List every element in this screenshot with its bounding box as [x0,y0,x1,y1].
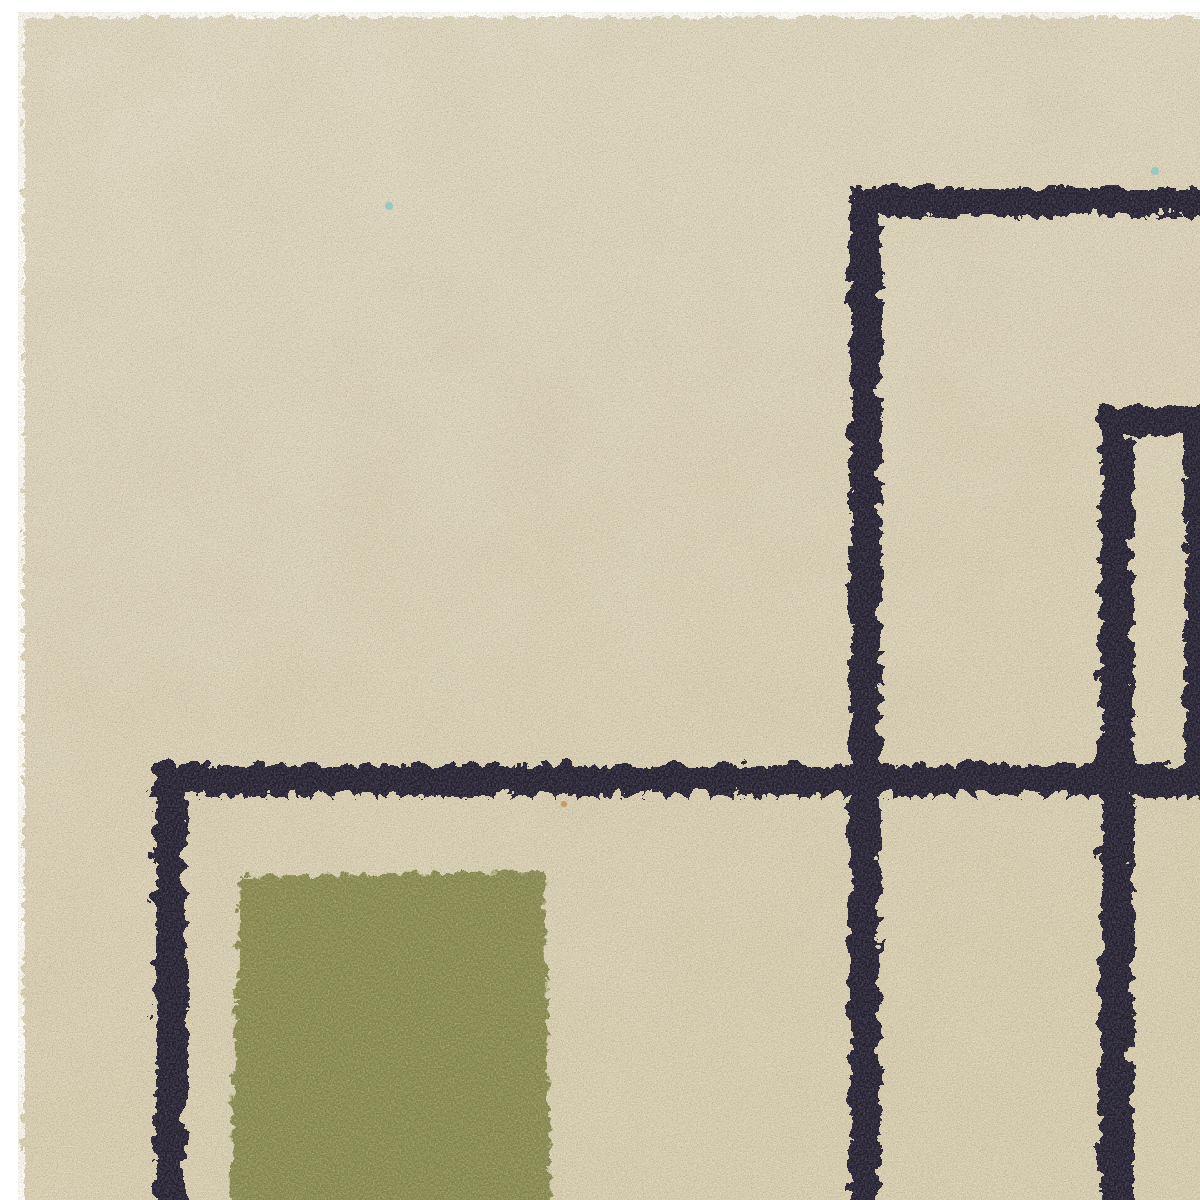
olive-green-block [228,869,548,1200]
teal-fiber-fleck-2 [1151,167,1159,175]
pattern-main-horizontal-line [151,761,1200,791]
rug-photo [0,0,1200,1200]
pattern-center-vertical-line [846,183,877,1200]
orange-fiber-fleck [561,801,567,807]
pattern-upper-horizontal-line [846,183,1200,212]
teal-fiber-fleck-1 [385,202,393,210]
pattern-lower-left-vertical-line [151,761,182,1200]
pattern-right-vertical-line [1097,402,1129,1200]
rug-product-photo [0,0,1200,1200]
pattern-right-edge-vertical-band [1181,402,1200,792]
